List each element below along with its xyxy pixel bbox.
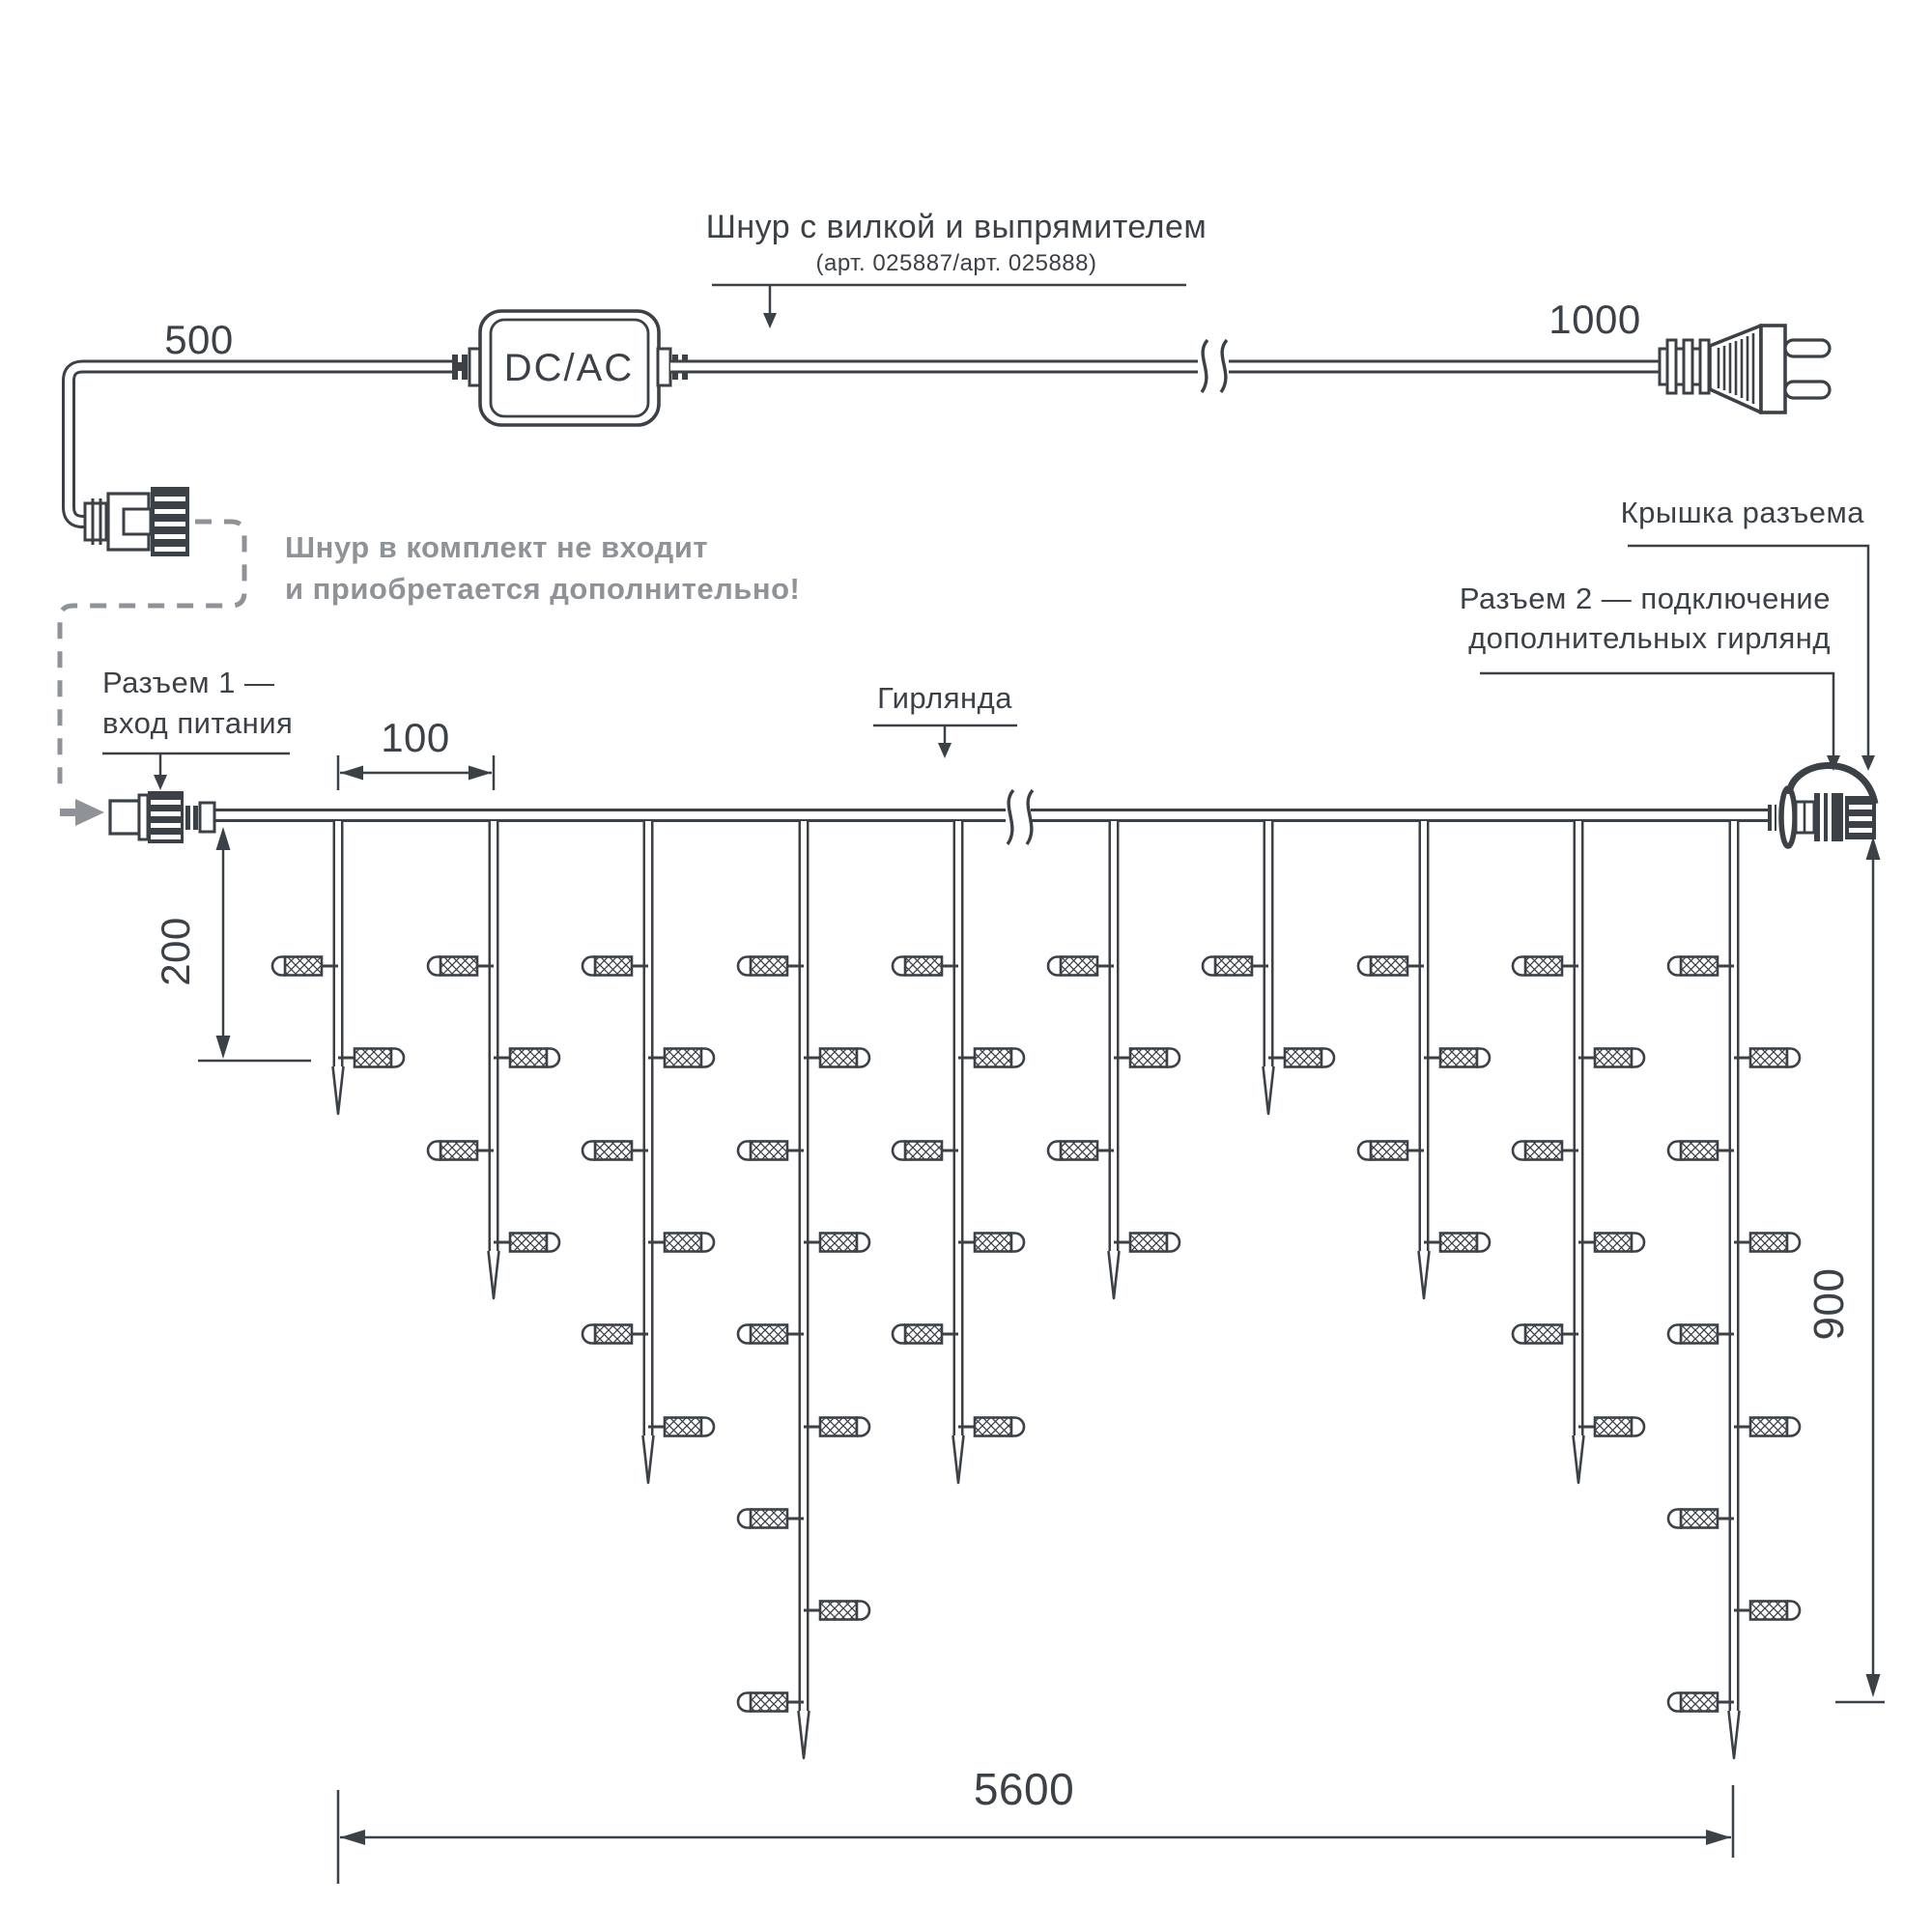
led-bulb-cap: [1668, 1510, 1681, 1528]
power-cord-assembly: Шнур с вилкой и выпрямителем (арт. 02588…: [69, 209, 1830, 556]
led-bulb-body: [905, 1142, 942, 1160]
led-bulb-cap: [547, 1234, 559, 1252]
led-bulb-body: [1595, 1418, 1632, 1436]
led-bulb-cap: [1321, 1049, 1334, 1067]
drop-tip: [1419, 1251, 1430, 1298]
led-bulb-body: [1130, 1234, 1167, 1252]
led-bulb-body: [975, 1418, 1011, 1436]
led-bulb-cap: [738, 1693, 751, 1712]
cord-title-arrow-icon: [763, 313, 777, 328]
led-bulb-cap: [1787, 1049, 1800, 1067]
dim-200: 200: [153, 827, 311, 1061]
led-bulb-cap: [582, 1325, 595, 1344]
led-bulb-body: [1285, 1049, 1321, 1067]
led-bulb-body: [751, 1325, 787, 1344]
led-bulb-body: [1371, 957, 1407, 976]
led-bulb-body: [1681, 1142, 1718, 1160]
led-bulb-body: [751, 1510, 787, 1528]
cap-label: Крышка разъема: [1621, 496, 1865, 529]
led-bulb-body: [595, 1142, 632, 1160]
led-bulb-body: [355, 1049, 391, 1067]
led-bulb-body: [1681, 1693, 1718, 1712]
connector2-label-line1: Разъем 2 — подключение: [1460, 582, 1831, 615]
dim-200-label: 200: [153, 917, 198, 986]
led-bulb-cap: [582, 1142, 595, 1160]
led-bulb-body: [440, 957, 477, 976]
led-bulb-body: [1525, 1325, 1562, 1344]
led-bulb-body: [665, 1049, 701, 1067]
led-bulb-cap: [1632, 1049, 1644, 1067]
dim-5600: 5600: [338, 1764, 1733, 1884]
led-bulb-cap: [1358, 957, 1371, 976]
led-bulb-body: [1681, 957, 1718, 976]
cap-arrow-icon: [1861, 755, 1875, 771]
led-bulb-body: [975, 1049, 1011, 1067]
led-bulb-cap: [1167, 1234, 1179, 1252]
connector2-ring: [1781, 788, 1795, 846]
dashed-connection-path: [60, 522, 244, 784]
connector2-callout: Разъем 2 — подключение дополнительных ги…: [1460, 582, 1840, 771]
plug-prong-top: [1785, 340, 1830, 356]
led-bulb-cap: [857, 1049, 869, 1067]
garland-connector2: [1768, 765, 1876, 846]
led-bulb-cap: [1787, 1234, 1800, 1252]
garland-arrow-icon: [938, 743, 952, 758]
led-bulb-cap: [1513, 1325, 1525, 1344]
led-bulb-body: [1061, 957, 1097, 976]
led-bulb-cap: [1668, 1325, 1681, 1344]
led-bulb-body: [1595, 1049, 1632, 1067]
led-bulb-body: [1681, 1325, 1718, 1344]
drop-tip: [953, 1435, 964, 1483]
note-line2: и приобретается дополнительно!: [285, 572, 800, 606]
led-bulb-body: [1750, 1602, 1787, 1620]
led-bulb-cap: [1668, 957, 1681, 976]
led-bulb-cap: [428, 1142, 440, 1160]
connector1-label-line1: Разъем 1 —: [102, 666, 274, 699]
led-bulb-cap: [701, 1418, 714, 1436]
diagram-page: Шнур с вилкой и выпрямителем (арт. 02588…: [0, 0, 1932, 1932]
led-bulb-cap: [1787, 1418, 1800, 1436]
led-bulb-body: [1750, 1049, 1787, 1067]
dcac-label: DC/AC: [504, 347, 634, 389]
led-bulb-cap: [428, 957, 440, 976]
led-bulb-body: [1130, 1049, 1167, 1067]
cord-end-connector: [85, 487, 189, 556]
led-bulb-body: [1440, 1049, 1477, 1067]
led-bulb-body: [1681, 1510, 1718, 1528]
led-bulb-body: [665, 1234, 701, 1252]
drop-tip: [1109, 1251, 1120, 1298]
led-bulb-body: [820, 1234, 857, 1252]
connector2-label-line2: дополнительных гирлянд: [1468, 621, 1831, 655]
led-bulb-body: [1215, 957, 1252, 976]
led-bulb-cap: [1477, 1049, 1490, 1067]
connector1-callout: Разъем 1 — вход питания: [102, 666, 293, 790]
led-bulb-cap: [701, 1234, 714, 1252]
garland-diagram: Шнур с вилкой и выпрямителем (арт. 02588…: [0, 0, 1932, 1932]
connector1-arrow-icon: [154, 775, 167, 790]
led-bulb-cap: [1011, 1418, 1024, 1436]
cord-articles: (арт. 025887/арт. 025888): [816, 250, 1097, 276]
led-bulb-body: [1440, 1234, 1477, 1252]
led-bulb-cap: [1668, 1693, 1681, 1712]
drop-tip: [333, 1066, 344, 1114]
led-bulb-body: [820, 1418, 857, 1436]
led-bulb-cap: [1668, 1142, 1681, 1160]
led-bulb-cap: [582, 957, 595, 976]
led-bulb-body: [285, 957, 322, 976]
led-bulb-body: [1750, 1234, 1787, 1252]
led-bulb-body: [905, 957, 942, 976]
led-bulb-cap: [1477, 1234, 1490, 1252]
garland-wire-break-icon: [1008, 790, 1013, 844]
dim-5600-label: 5600: [974, 1764, 1074, 1814]
drop-tip: [1264, 1066, 1274, 1114]
led-bulb-cap: [701, 1049, 714, 1067]
led-bulb-cap: [1048, 1142, 1061, 1160]
icicle-drops: [272, 821, 1800, 1758]
led-bulb-cap: [857, 1602, 869, 1620]
led-bulb-cap: [1167, 1049, 1179, 1067]
led-bulb-cap: [391, 1049, 404, 1067]
note-line1: Шнур в комплект не входит: [285, 530, 708, 564]
led-bulb-cap: [1203, 957, 1215, 976]
plug-prong-bottom: [1785, 382, 1830, 398]
connector1-label-line2: вход питания: [102, 706, 293, 740]
led-bulb-body: [665, 1418, 701, 1436]
led-bulb-cap: [1048, 957, 1061, 976]
drop-tip: [489, 1251, 499, 1298]
led-bulb-cap: [1513, 1142, 1525, 1160]
garland-callout: Гирлянда: [873, 681, 1017, 758]
garland-connector1: [110, 791, 214, 843]
led-bulb-body: [975, 1234, 1011, 1252]
gray-arrow-icon: [75, 799, 104, 826]
garland-assembly: [110, 765, 1876, 1758]
led-bulb-cap: [893, 1142, 905, 1160]
drop-tip: [643, 1435, 654, 1483]
led-bulb-body: [510, 1049, 547, 1067]
led-bulb-body: [440, 1142, 477, 1160]
led-bulb-cap: [1787, 1602, 1800, 1620]
led-bulb-body: [1595, 1234, 1632, 1252]
dim-900-label: 900: [1805, 1268, 1853, 1341]
garland-label: Гирлянда: [877, 681, 1012, 715]
drop-tip: [1729, 1711, 1740, 1758]
mains-plug: [1660, 326, 1830, 412]
dcac-converter: DC/AC: [452, 311, 688, 425]
led-bulb-body: [751, 1142, 787, 1160]
led-bulb-cap: [1011, 1234, 1024, 1252]
led-bulb-body: [751, 957, 787, 976]
led-bulb-body: [1750, 1418, 1787, 1436]
led-bulb-body: [595, 1325, 632, 1344]
led-bulb-cap: [1513, 957, 1525, 976]
drop-tip: [1574, 1435, 1584, 1483]
led-bulb-body: [905, 1325, 942, 1344]
led-bulb-body: [1525, 957, 1562, 976]
cord-break-icon: [1202, 340, 1207, 392]
led-bulb-cap: [1011, 1049, 1024, 1067]
led-bulb-cap: [738, 1325, 751, 1344]
dim-100-label: 100: [381, 715, 450, 760]
led-bulb-body: [1525, 1142, 1562, 1160]
led-bulb-cap: [272, 957, 285, 976]
cord-title: Шнур с вилкой и выпрямителем: [706, 209, 1207, 245]
led-bulb-body: [751, 1693, 787, 1712]
led-bulb-cap: [857, 1234, 869, 1252]
led-bulb-body: [820, 1049, 857, 1067]
led-bulb-cap: [738, 1142, 751, 1160]
led-bulb-cap: [738, 1510, 751, 1528]
led-bulb-body: [1371, 1142, 1407, 1160]
led-bulb-cap: [1632, 1418, 1644, 1436]
led-bulb-cap: [547, 1049, 559, 1067]
dim-1000-label: 1000: [1548, 297, 1640, 342]
drop-tip: [799, 1711, 810, 1758]
dim-100: 100: [338, 715, 494, 790]
led-bulb-cap: [1632, 1234, 1644, 1252]
led-bulb-body: [1061, 1142, 1097, 1160]
led-bulb-cap: [893, 957, 905, 976]
led-bulb-cap: [893, 1325, 905, 1344]
led-bulb-cap: [857, 1418, 869, 1436]
led-bulb-cap: [1358, 1142, 1371, 1160]
led-bulb-body: [510, 1234, 547, 1252]
led-bulb-cap: [738, 957, 751, 976]
dim-500-label: 500: [164, 317, 234, 362]
dim-900: 900: [1805, 837, 1885, 1702]
led-bulb-body: [820, 1602, 857, 1620]
led-bulb-body: [595, 957, 632, 976]
